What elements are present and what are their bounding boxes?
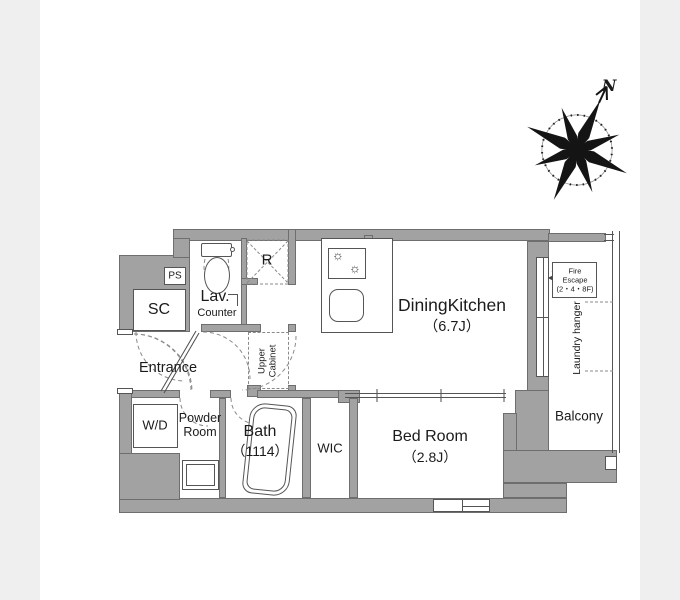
balcony-railing [612,231,620,453]
toilet-flush-knob-icon [230,247,235,252]
compass-point-w [525,121,584,157]
door-swing-arc [203,332,250,379]
wic-label: WIC [317,442,342,457]
wall [288,229,296,285]
compass-point-s [548,144,584,203]
balcony-label: Balcony [555,408,603,423]
wall [119,498,567,513]
wall [349,398,358,498]
counter-label: Counter [197,307,236,319]
wall [503,450,617,483]
fire-escape-label-line3: (2・4・8F) [556,285,593,294]
dining-kitchen-size: （6.7J） [424,319,480,335]
wall [515,390,549,452]
dining-kitchen-label: DiningKitchen [398,296,506,316]
wall [503,413,517,452]
laundry-hanger-label: Laundry hanger [572,301,584,375]
window-sash-divider [537,317,548,318]
powder-room-label-line2: Room [179,425,221,439]
wall [210,390,231,398]
wall [302,398,311,498]
floor-plan-canvas: ☼ ☼ PS SC Lav. Counter R DiningKitchen （… [0,0,680,600]
compass-point-n [570,98,606,157]
wall [241,278,258,285]
powder-room-label-line1: Powder [179,411,221,425]
fire-escape-label-line1: Fire [556,267,593,276]
entrance-door-jamb [117,329,133,335]
balcony-railing-top [604,234,614,241]
upper-cabinet-label: Upper Cabinet [257,345,278,378]
powder-room-label: Powder Room [179,411,221,439]
right-gray-band [640,0,680,600]
left-gray-band [0,0,40,600]
bath-size: （1114） [231,444,288,460]
compass-point-sw [533,144,582,170]
wall [119,453,180,500]
wall [201,324,261,332]
compass-point-e [571,143,630,179]
north-label: N [602,77,617,95]
washer-dryer-label: W/D [142,419,167,434]
bed-room-label: Bed Room [392,428,468,446]
wall-notch [605,456,617,470]
wall [288,324,296,332]
toilet-tank-icon [201,243,232,257]
fire-escape-arrow-icon: ◀ [548,276,553,283]
window-glass-line [462,506,490,507]
ps-label: PS [168,270,181,281]
wall [131,390,180,398]
entrance-label: Entrance [139,360,197,376]
burner-icon: ☼ [349,262,361,277]
bed-room-size: （2.8J） [403,450,457,466]
fire-escape-label-line2: Escape [556,276,593,285]
compass-point-nw [557,106,583,155]
compass-point-ne [572,130,621,156]
compass-circle [530,103,623,196]
burner-icon: ☼ [332,249,344,264]
wall [548,233,606,242]
wall [173,238,190,258]
vanity-sink-icon [182,460,219,490]
entrance-door-jamb [117,388,133,394]
sliding-door-track [345,393,506,398]
compass-tick-ring [530,103,623,196]
wall [241,238,247,332]
refrigerator-space-label: R [262,253,273,270]
kitchen-sink-icon [329,289,364,322]
fire-escape-label: Fire Escape (2・4・8F) [556,267,593,294]
shoe-closet-label: SC [148,301,170,319]
compass-point-se [571,145,597,194]
vanity-sink-basin [186,464,215,486]
compass-rose-icon [512,72,642,222]
bedroom-window [433,499,490,512]
upper-cabinet-label-line2: Cabinet [268,345,279,378]
lavatory-label: Lav. [200,288,229,306]
wall [503,483,567,498]
bath-label: Bath [244,423,277,441]
